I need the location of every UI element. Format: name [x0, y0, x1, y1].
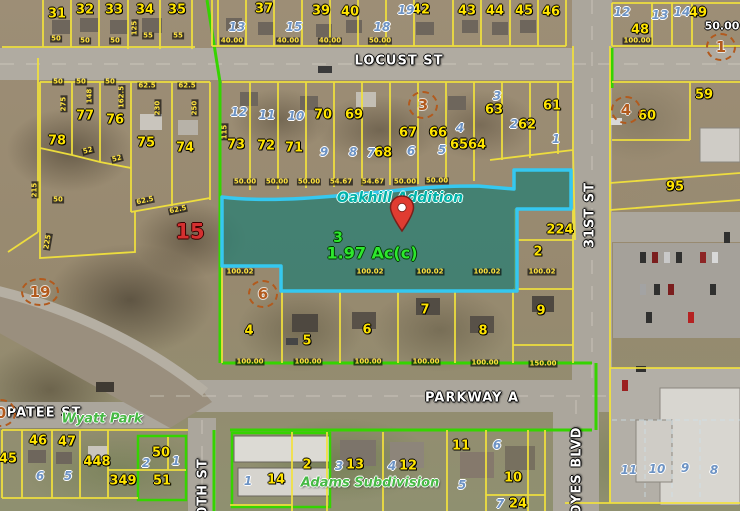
dimension-label: 250 [192, 100, 199, 117]
lot-number-label: 33 [105, 4, 123, 17]
parcel-map-canvas[interactable]: 505050125555540.0040.0040.0050.00100.005… [0, 0, 740, 511]
block-lot-number-label: 1 [244, 475, 252, 487]
lot-number-label: 63 [485, 104, 503, 117]
lot-number-label: 68 [374, 147, 392, 160]
lot-number-label: 50 [152, 447, 170, 460]
lot-number-label: 71 [285, 142, 303, 155]
lot-number-label: 9 [536, 305, 545, 318]
dimension-label: 54.67 [361, 179, 385, 186]
block-lot-number-label: 1 [172, 455, 180, 467]
dimension-label: 148 [87, 88, 94, 105]
block-lot-number-label: 15 [286, 21, 303, 33]
dimension-label: 62.5 [137, 83, 156, 90]
lot-number-label: 31 [48, 8, 66, 21]
block-lot-number-label: 14 [674, 6, 691, 18]
lot-number-label: 70 [314, 109, 332, 122]
block-lot-number-label: 10 [649, 463, 666, 475]
block-lot-number-label: 9 [681, 462, 689, 474]
selected-parcel-area: 1.97 Ac(c) [326, 244, 417, 263]
dimension-label: 40.00 [318, 38, 342, 45]
lot-number-label: 75 [137, 137, 155, 150]
dimension-label: 50.00 [265, 179, 289, 186]
block-circle-label: 1 [706, 33, 736, 61]
dimension-label: 50.00 [368, 38, 392, 45]
block-lot-number-label: 5 [64, 470, 72, 482]
block-lot-number-label: 7 [367, 147, 375, 159]
lot-number-label: 64 [468, 139, 486, 152]
dimension-label: 50 [104, 79, 116, 86]
lot-number-label: 46 [542, 6, 560, 19]
dimension-label: 62.5 [168, 205, 188, 216]
dimension-label: 162.5 [119, 85, 126, 109]
dimension-label: 225 [43, 233, 53, 251]
dimension-label: 62.5 [177, 83, 196, 90]
lot-number-label: 14 [267, 474, 285, 487]
block-lot-number-label: 3 [493, 90, 501, 102]
lot-number-label: 349 [109, 475, 136, 488]
block-lot-number-label: 2 [510, 118, 518, 130]
lot-number-label: 11 [452, 440, 470, 453]
lot-number-label: 46 [29, 435, 47, 448]
lot-number-label: 44 [486, 5, 504, 18]
lot-number-label: 35 [168, 4, 186, 17]
lot-number-label: 47 [58, 436, 76, 449]
street-name-label: 31ST ST [584, 182, 597, 248]
block-lot-number-label: 9 [320, 146, 328, 158]
block-circle-label: 0 [0, 399, 16, 427]
street-name-label: NOYES BLVD [571, 427, 584, 511]
lot-number-label: 2 [302, 459, 311, 472]
dimension-label: 50 [79, 38, 91, 45]
block-lot-number-label: 11 [621, 464, 638, 476]
lot-number-label: 4 [244, 325, 253, 338]
lot-number-label: 42 [412, 4, 430, 17]
lot-number-label: 43 [458, 5, 476, 18]
lot-number-label: 66 [429, 127, 447, 140]
block-lot-number-label: 6 [493, 439, 501, 451]
lot-number-label: 5 [302, 335, 311, 348]
dimension-label: 62.5 [135, 196, 155, 207]
lot-number-label: 95 [666, 181, 684, 194]
dimension-label: 100.00 [293, 359, 322, 366]
dimension-label: 100.00 [235, 359, 264, 366]
block-lot-number-label: 7 [496, 498, 504, 510]
dimension-label: 50 [50, 36, 62, 43]
dimension-label: 125 [132, 20, 139, 37]
block-lot-number-label: 3 [335, 460, 343, 472]
place-name-label: Wyatt Park [61, 413, 142, 426]
lot-number-label: 76 [106, 114, 124, 127]
block-lot-number-label: 2 [142, 457, 150, 469]
lot-number-label: 12 [399, 460, 417, 473]
lot-number-label: 224 [546, 224, 573, 237]
block-lot-number-label: 13 [652, 9, 669, 21]
dimension-label: 55 [172, 33, 184, 40]
dimension-label: 40.00 [220, 38, 244, 45]
dimension-label: 50.00 [297, 179, 321, 186]
lot-number-label: 2 [533, 246, 542, 259]
dimension-label: 100.02 [355, 269, 384, 276]
lot-number-label: 59 [695, 89, 713, 102]
lot-number-label: 8 [478, 325, 487, 338]
lot-number-label: 10 [504, 472, 522, 485]
dimension-label: 55 [142, 33, 154, 40]
dimension-label: 50 [52, 79, 64, 86]
place-name-label: Adams Subdivision [301, 477, 440, 490]
block-lot-number-label: 6 [407, 145, 415, 157]
dimension-label: 40.00 [276, 38, 300, 45]
lot-number-label: 39 [312, 5, 330, 18]
block-lot-number-label: 13 [229, 21, 246, 33]
lot-number-label: 62 [518, 119, 536, 132]
block-lot-number-label: 12 [614, 6, 631, 18]
section-number-label: 15 [175, 222, 204, 243]
lot-number-label: 448 [83, 456, 110, 469]
dimension-label: 52 [81, 146, 94, 156]
street-name-label: LOCUST ST [355, 55, 444, 68]
lot-number-label: 72 [257, 140, 275, 153]
lot-number-label: 13 [346, 459, 364, 472]
dimension-label: 150.00 [528, 361, 557, 368]
dimension-label: 275 [61, 96, 68, 113]
lot-number-label: 78 [48, 135, 66, 148]
dimension-label: 215 [32, 182, 39, 199]
block-lot-number-label: 8 [710, 464, 718, 476]
lot-number-label: 40 [341, 6, 359, 19]
dimension-label: 230 [155, 100, 162, 117]
block-lot-number-label: 5 [458, 479, 466, 491]
street-name-label: PARKWAY A [425, 392, 519, 405]
dimension-label: 100.02 [225, 269, 254, 276]
lot-number-label: 67 [399, 127, 417, 140]
lot-number-label: 48 [631, 24, 649, 37]
lot-number-label: 77 [76, 110, 94, 123]
dimension-label: 50 [52, 197, 64, 204]
dimension-label: 50.00 [425, 178, 449, 185]
dimension-label-white: 50.00 [705, 21, 740, 32]
block-lot-number-label: 6 [36, 470, 44, 482]
dimension-label: 54.67 [329, 179, 353, 186]
dimension-label: 100.00 [470, 360, 499, 367]
lot-number-label: 45 [515, 5, 533, 18]
dimension-label: 100.00 [411, 359, 440, 366]
lot-number-label: 32 [76, 4, 94, 17]
lot-number-label: 61 [543, 100, 561, 113]
block-lot-number-label: 18 [374, 21, 391, 33]
dimension-label: 100.02 [527, 269, 556, 276]
dimension-label: 50 [109, 38, 121, 45]
dimension-label: 50 [75, 79, 87, 86]
lot-number-label: 69 [345, 109, 363, 122]
dimension-label: 100.00 [353, 359, 382, 366]
block-lot-number-label: 4 [388, 460, 396, 472]
dimension-label: 50.00 [393, 179, 417, 186]
lot-number-label: 49 [689, 7, 707, 20]
dimension-label: 50.00 [233, 179, 257, 186]
dimension-label: 100.02 [472, 269, 501, 276]
lot-number-label: 51 [153, 475, 171, 488]
dimension-label: 52 [110, 154, 123, 164]
lot-number-label: 34 [136, 4, 154, 17]
block-lot-number-label: 11 [259, 109, 276, 121]
street-name-label: 30TH ST [197, 458, 210, 511]
dimension-label: 100.00 [622, 38, 651, 45]
dimension-label: 100.02 [415, 269, 444, 276]
lot-number-label: 73 [227, 139, 245, 152]
lot-number-label: 74 [176, 142, 194, 155]
block-lot-number-label: 19 [398, 4, 415, 16]
block-circle-label: 4 [611, 96, 641, 124]
block-lot-number-label: 1 [552, 133, 560, 145]
block-lot-number-label: 4 [456, 122, 464, 134]
lot-number-label: 6 [362, 324, 371, 337]
block-circle-label: 3 [408, 91, 438, 119]
block-lot-number-label: 10 [288, 110, 305, 122]
lot-number-label: 45 [0, 453, 17, 466]
block-lot-number-label: 5 [438, 144, 446, 156]
lot-number-label: 65 [450, 139, 468, 152]
block-lot-number-label: 8 [349, 146, 357, 158]
block-circle-label: 19 [21, 278, 59, 306]
block-circle-label: 6 [248, 280, 278, 308]
lot-number-label: 24 [509, 498, 527, 511]
lot-number-label: 7 [420, 304, 429, 317]
lot-number-label: 37 [255, 3, 273, 16]
block-lot-number-label: 12 [231, 106, 248, 118]
